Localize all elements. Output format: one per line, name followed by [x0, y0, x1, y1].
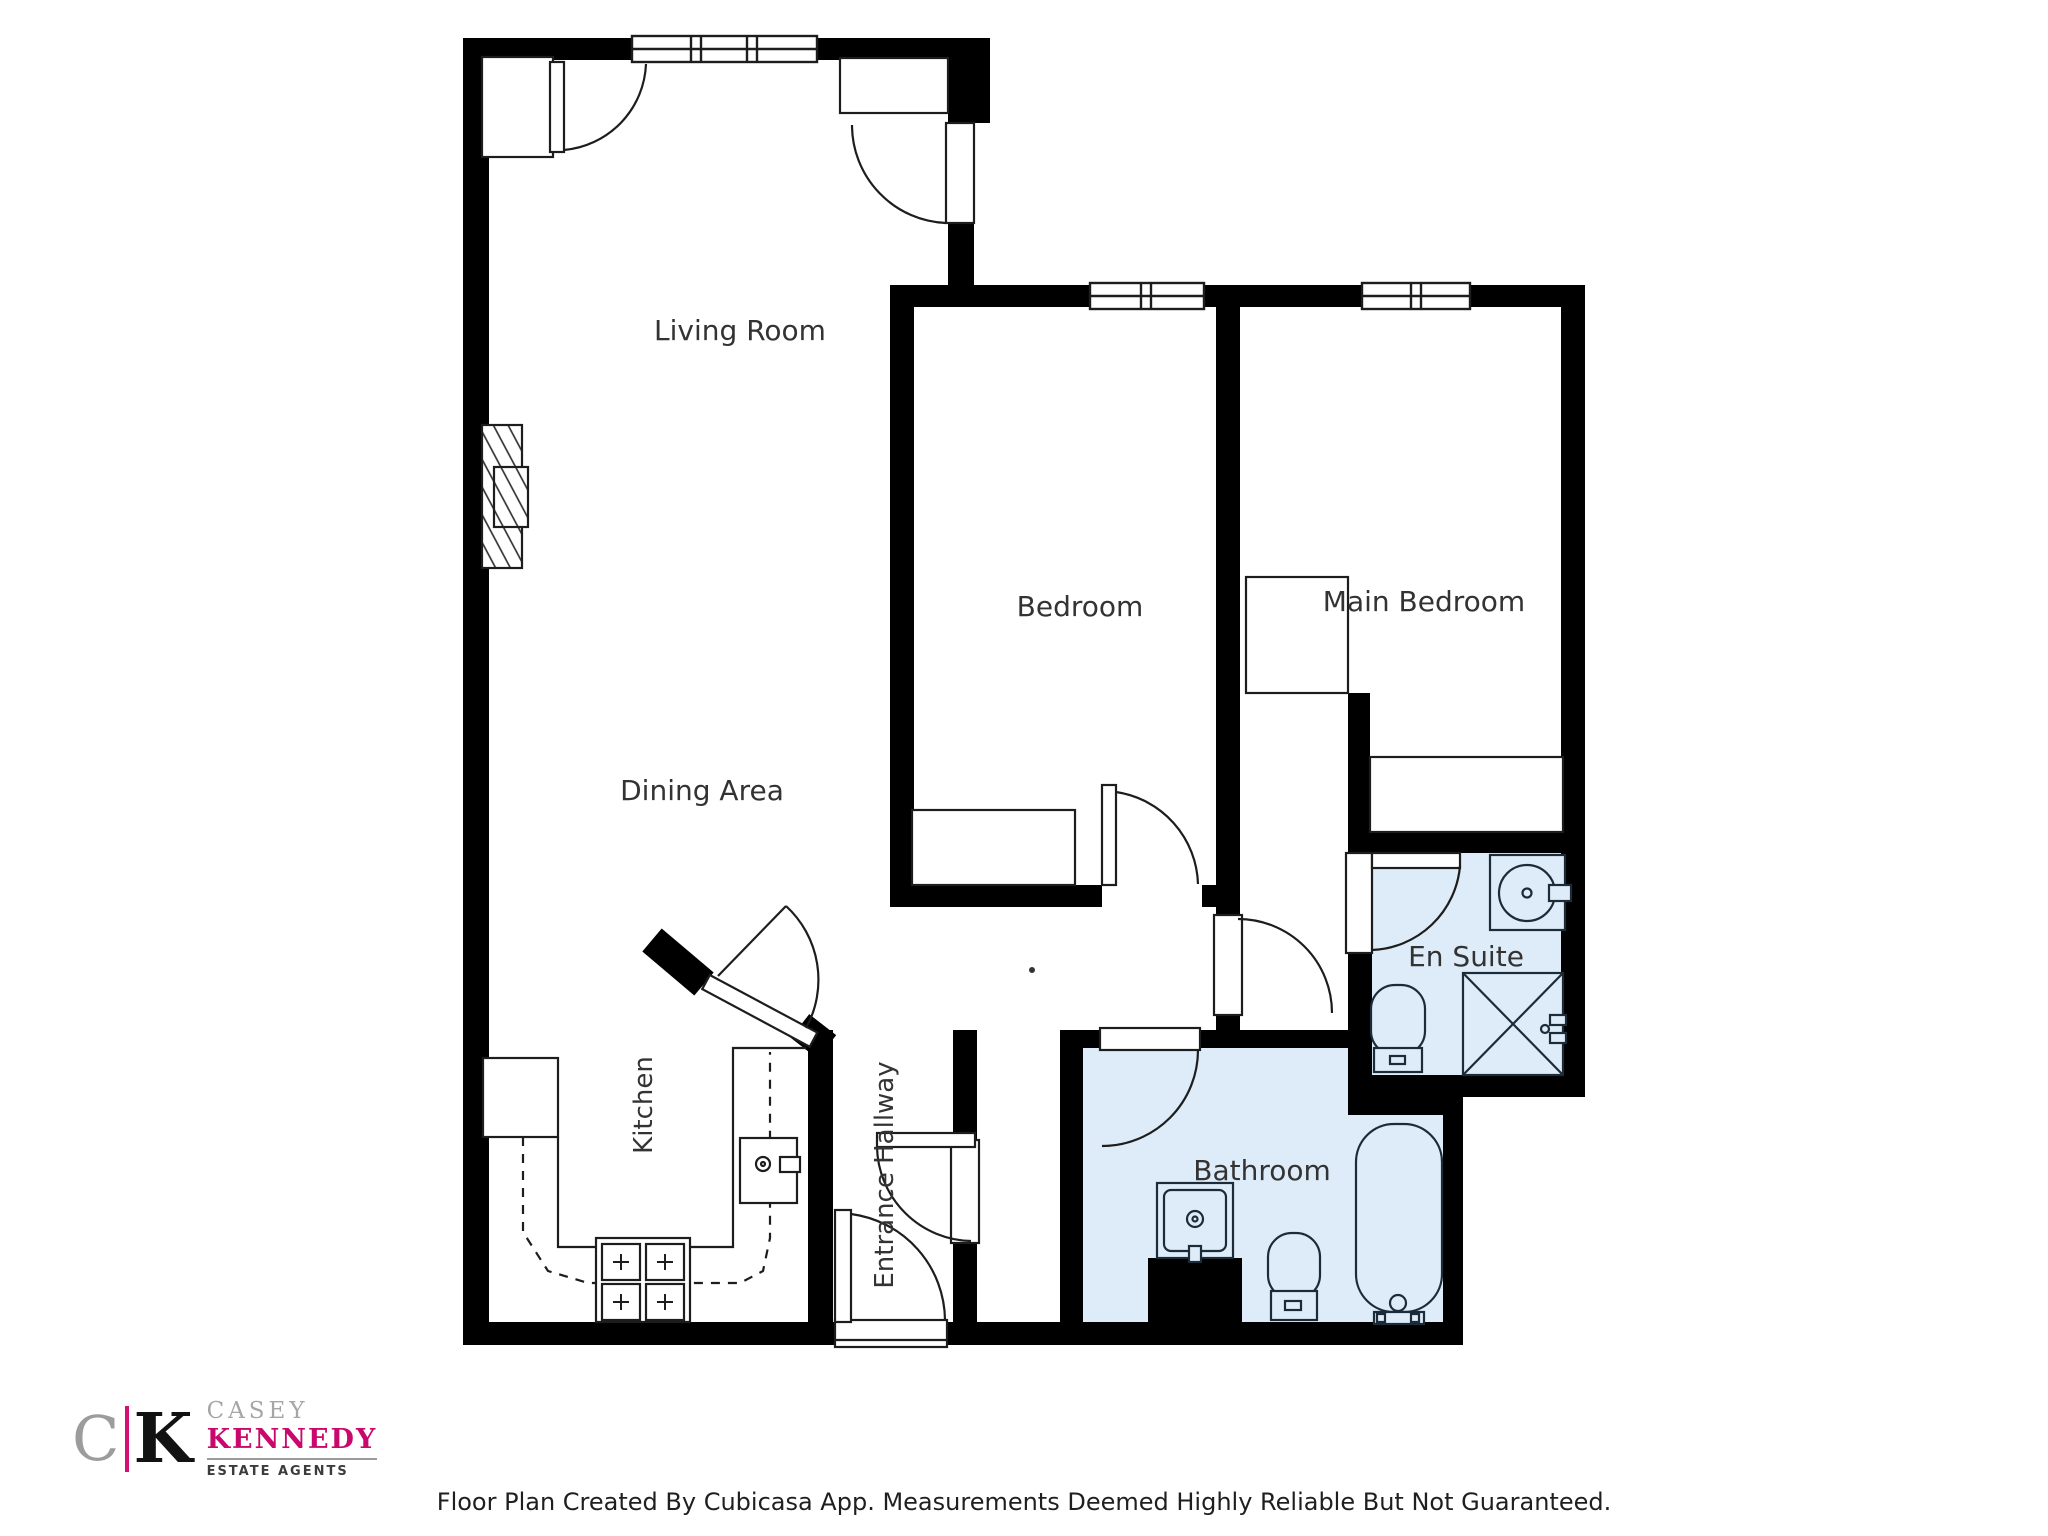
wall-hallway-east-upper [953, 1030, 977, 1140]
vanity-counter [1148, 1258, 1242, 1323]
logo-rule [207, 1458, 378, 1460]
wall-living-east-lower [890, 285, 914, 907]
label-living-room: Living Room [654, 314, 826, 347]
wall-wardrobe-nook-stub [1348, 693, 1370, 832]
wall-right-exterior [1561, 285, 1585, 1097]
bedroom-window-icon [1090, 283, 1204, 309]
fridge-icon [483, 1058, 558, 1137]
plan-artifact-dot [1029, 967, 1035, 973]
door-dining-diagonal [702, 975, 817, 1047]
agency-logo: C K CASEY KENNEDY ESTATE AGENTS [72, 1398, 377, 1479]
wall-hallway-east-lower [953, 1243, 977, 1322]
closet-living-west [482, 57, 553, 157]
wall-bathroom-west [1060, 1030, 1083, 1322]
logo-name-top: CASEY [207, 1398, 378, 1424]
label-entrance-hallway: Entrance Hallway [870, 1061, 900, 1288]
door-arc-main-bedroom [1238, 919, 1332, 1013]
wall-bedroom-bottom-east [1202, 885, 1240, 907]
wall-ensuite-top [1348, 832, 1585, 853]
ensuite-toilet-icon [1371, 985, 1425, 1072]
fireplace-inner [494, 467, 528, 527]
door-hall-closet [951, 1140, 979, 1243]
living-room-window-icon [632, 36, 817, 62]
door-bathroom [1100, 1028, 1200, 1050]
door-arc-dining [786, 906, 818, 1028]
label-bedroom: Bedroom [1017, 590, 1144, 623]
main-bedroom-window-icon [1362, 283, 1470, 309]
shower-icon [1463, 973, 1566, 1075]
wall-ne-corner-block [948, 38, 990, 123]
label-main-bedroom: Main Bedroom [1323, 585, 1525, 618]
footer-disclaimer: Floor Plan Created By Cubicasa App. Meas… [0, 1488, 2048, 1516]
door-leaf-closet-west [550, 62, 564, 152]
logo-letter-c: C [72, 1400, 119, 1478]
wall-bathroom-top-east [1200, 1030, 1348, 1048]
wall-hallway-west [808, 1030, 833, 1322]
wall-bedrooms-top [890, 285, 1585, 307]
ensuite-sink-icon [1490, 855, 1571, 930]
logo-letter-k: K [133, 1400, 192, 1478]
wardrobe-bedroom [912, 810, 1075, 885]
wall-bathroom-top-west [1060, 1030, 1100, 1048]
wall-bottom-west [463, 1322, 835, 1345]
closet-living-ne [840, 58, 948, 113]
kitchen-sink-icon [740, 1138, 800, 1203]
door-leaf-dining [718, 906, 786, 976]
wall-ensuite-bottom-east [1463, 1075, 1585, 1097]
stove-icon [596, 1238, 690, 1322]
door-arc-balcony [852, 125, 946, 223]
bathroom-sink-icon [1157, 1183, 1233, 1262]
wall-bedroom-bottom-west [890, 885, 1102, 907]
agency-logo-text: CASEY KENNEDY ESTATE AGENTS [207, 1398, 378, 1479]
door-arc-closet-west [564, 64, 646, 150]
furniture [482, 425, 1563, 885]
door-balcony [946, 123, 974, 223]
bathroom-toilet-icon [1268, 1233, 1320, 1320]
agency-logo-mark: C K [72, 1400, 193, 1478]
logo-divider-bar [125, 1406, 129, 1472]
label-bathroom: Bathroom [1193, 1154, 1331, 1187]
logo-name-bottom: KENNEDY [207, 1424, 378, 1455]
floor-plan-page: Living Room Dining Area Kitchen Entrance… [0, 0, 2048, 1536]
wardrobe-main-bedroom-south [1370, 757, 1563, 832]
logo-tagline: ESTATE AGENTS [207, 1464, 378, 1479]
door-ensuite [1346, 853, 1372, 953]
wall-bedroom-divider [1216, 307, 1240, 915]
door-main-bedroom [1214, 915, 1242, 1015]
door-arc-bedroom [1116, 792, 1198, 884]
label-kitchen: Kitchen [629, 1056, 659, 1154]
door-leaf-ensuite [1372, 853, 1460, 868]
door-leaf-front [835, 1210, 851, 1322]
wall-tub-alcove-east [1443, 1097, 1463, 1345]
label-en-suite: En Suite [1408, 940, 1524, 973]
label-dining-area: Dining Area [620, 774, 784, 807]
bathtub-icon [1356, 1124, 1442, 1324]
windows [632, 36, 1470, 309]
door-front-entrance [835, 1320, 947, 1347]
wall-bottom-east [947, 1322, 1463, 1345]
door-leaf-bedroom [1102, 785, 1116, 885]
wall-diagonal-stub-north [652, 940, 704, 984]
floor-plan-drawing: Living Room Dining Area Kitchen Entrance… [0, 0, 2048, 1536]
wall-left-exterior [463, 38, 489, 1345]
